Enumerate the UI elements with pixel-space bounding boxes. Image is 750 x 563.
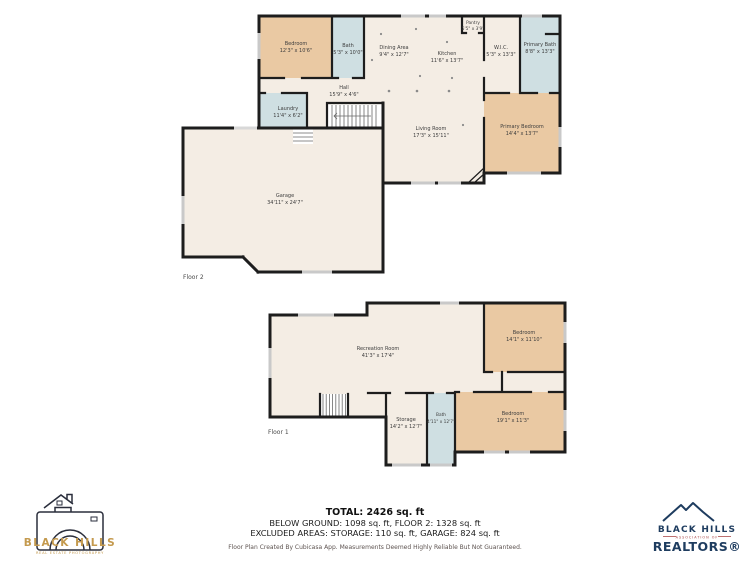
photography-logo: BLACK HILLS REAL ESTATE PHOTOGRAPHY: [24, 495, 116, 556]
floor-plan-image: Bedroom12'3" x 10'6" Bath5'3" x 10'0" Di…: [0, 0, 750, 563]
room-label-primary-bath: Primary Bath8'8" x 13'3": [524, 42, 557, 55]
realtors-logo-title: BLACK HILLS: [658, 525, 736, 535]
realtors-logo-name: REALTORS®: [653, 539, 742, 554]
area-summary: TOTAL: 2426 sq. ft BELOW GROUND: 1098 sq…: [228, 507, 522, 551]
total-area-text: TOTAL: 2426 sq. ft: [326, 507, 425, 518]
floor-plan-page: Bedroom12'3" x 10'6" Bath5'3" x 10'0" Di…: [0, 0, 750, 563]
staircase-floor1: [320, 394, 348, 417]
excluded-areas-text: EXCLUDED AREAS: STORAGE: 110 sq. ft, GAR…: [250, 528, 500, 538]
room-label-living-room: Living Room17'3" x 15'11": [413, 126, 449, 139]
floor1-caption: Floor 1: [268, 429, 289, 436]
floor1-plan: Recreation Room41'3" x 17'4" Bedroom14'1…: [268, 303, 565, 465]
realtors-logo: BLACK HILLS ASSOCIATION OF REALTORS®: [653, 503, 742, 554]
floor-areas-text: BELOW GROUND: 1098 sq. ft, FLOOR 2: 1328…: [269, 518, 481, 528]
mountain-icon: [663, 503, 714, 521]
photography-logo-subtitle: REAL ESTATE PHOTOGRAPHY: [36, 551, 104, 555]
room-bedroom2-fill: [259, 16, 332, 78]
room-label-primary-bedroom: Primary Bedroom14'4" x 13'7": [500, 124, 544, 137]
room-label-recreation: Recreation Room41'3" x 17'4": [357, 346, 400, 359]
disclaimer-text: Floor Plan Created By Cubicasa App. Meas…: [228, 544, 522, 551]
steps-to-garage: [293, 129, 313, 144]
staircase-floor2: [328, 105, 382, 128]
floor2-plan: Bedroom12'3" x 10'6" Bath5'3" x 10'0" Di…: [183, 16, 560, 281]
room-label-dining: Dining Area9'4" x 12'7": [379, 45, 408, 58]
photography-logo-title: BLACK HILLS: [24, 537, 116, 549]
room-bath-f1-fill: [427, 393, 455, 465]
floor2-caption: Floor 2: [183, 274, 204, 281]
